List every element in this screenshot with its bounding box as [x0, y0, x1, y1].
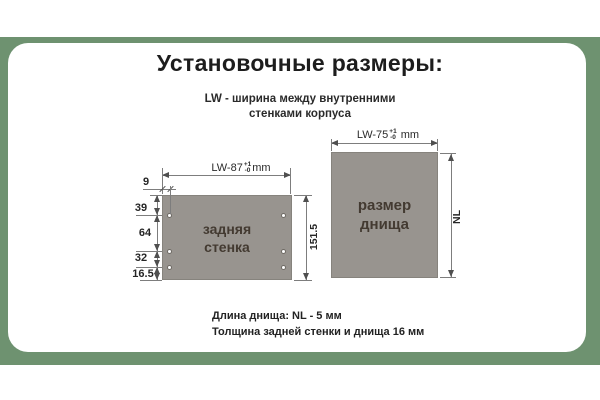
- dim-prefix: LW-87: [211, 162, 242, 174]
- arrow-down-icon: [154, 244, 160, 251]
- arrow-down-icon: [448, 270, 454, 277]
- bottom-height-dim-value: NL: [451, 205, 463, 229]
- extension-line: [290, 168, 291, 194]
- back-wall-width-dim-label: LW-87+1-0mm: [196, 162, 286, 174]
- segment-dim-16-5: 16.5: [128, 268, 158, 280]
- note-bottom-length: Длина днища: NL - 5 мм: [212, 308, 424, 324]
- back-wall-width-dim-line: [162, 175, 291, 176]
- extension-line: [331, 139, 332, 151]
- back-wall-height-dim-line: [306, 195, 307, 280]
- extension-line: [140, 280, 162, 281]
- hole-right-1: [281, 213, 286, 218]
- extension-line: [440, 153, 456, 154]
- tolerance-minus: -0: [244, 168, 251, 174]
- back-wall-label-line1: задняя: [203, 220, 251, 238]
- back-wall-panel: задняя стенка: [162, 195, 292, 280]
- tolerance-stack: +1-0: [389, 129, 396, 141]
- hole-left-2: [167, 249, 172, 254]
- hole-offset-extension-line: [170, 186, 171, 214]
- page: Установочные размеры: LW - ширина между …: [0, 0, 600, 400]
- bottom-width-dim-line: [331, 143, 438, 144]
- bottom-size-panel: размер днища: [331, 152, 438, 278]
- extension-line: [294, 195, 312, 196]
- arrow-down-icon: [154, 208, 160, 215]
- tolerance-stack: +1-0: [244, 162, 251, 174]
- segment-dim-32: 32: [130, 252, 152, 264]
- segment-dim-64: 64: [134, 227, 156, 239]
- hole-right-2: [281, 249, 286, 254]
- extension-line: [136, 215, 162, 216]
- extension-line: [294, 280, 312, 281]
- hole-right-3: [281, 265, 286, 270]
- arrow-up-icon: [154, 195, 160, 202]
- bottom-size-label-line2: днища: [360, 215, 409, 234]
- arrow-left-icon: [331, 140, 338, 146]
- arrow-up-icon: [448, 154, 454, 161]
- notes-block: Длина днища: NL - 5 мм Толщина задней ст…: [212, 308, 424, 340]
- hole-offset-dim-value: 9: [139, 176, 153, 188]
- dim-prefix: LW-75: [357, 129, 388, 141]
- arrow-down-icon: [303, 273, 309, 280]
- dim-suffix: mm: [401, 129, 419, 141]
- back-wall-label-line2: стенка: [204, 238, 250, 256]
- back-wall-height-dim-value: 151.5: [308, 219, 320, 255]
- arrow-left-icon: [162, 172, 169, 178]
- page-title: Установочные размеры:: [0, 50, 600, 77]
- extension-line: [150, 195, 162, 196]
- note-thickness: Толщина задней стенки и днища 16 мм: [212, 324, 424, 340]
- lw-legend-line2: стенками корпуса: [0, 107, 600, 122]
- hole-left-3: [167, 265, 172, 270]
- extension-line: [162, 168, 163, 194]
- segment-dim-39: 39: [130, 202, 152, 214]
- arrow-up-icon: [154, 215, 160, 222]
- extension-line: [440, 277, 456, 278]
- bottom-width-dim-label: LW-75+1-0 mm: [338, 129, 438, 141]
- arrow-up-icon: [154, 251, 160, 258]
- arrow-up-icon: [303, 195, 309, 202]
- lw-legend: LW - ширина между внутренними стенками к…: [0, 92, 600, 122]
- bottom-size-label-line1: размер: [358, 196, 411, 215]
- arrow-down-icon: [154, 260, 160, 267]
- tolerance-minus: -0: [389, 135, 396, 141]
- lw-legend-line1: LW - ширина между внутренними: [0, 92, 600, 107]
- content-card: [8, 43, 586, 352]
- dim-suffix: mm: [252, 162, 270, 174]
